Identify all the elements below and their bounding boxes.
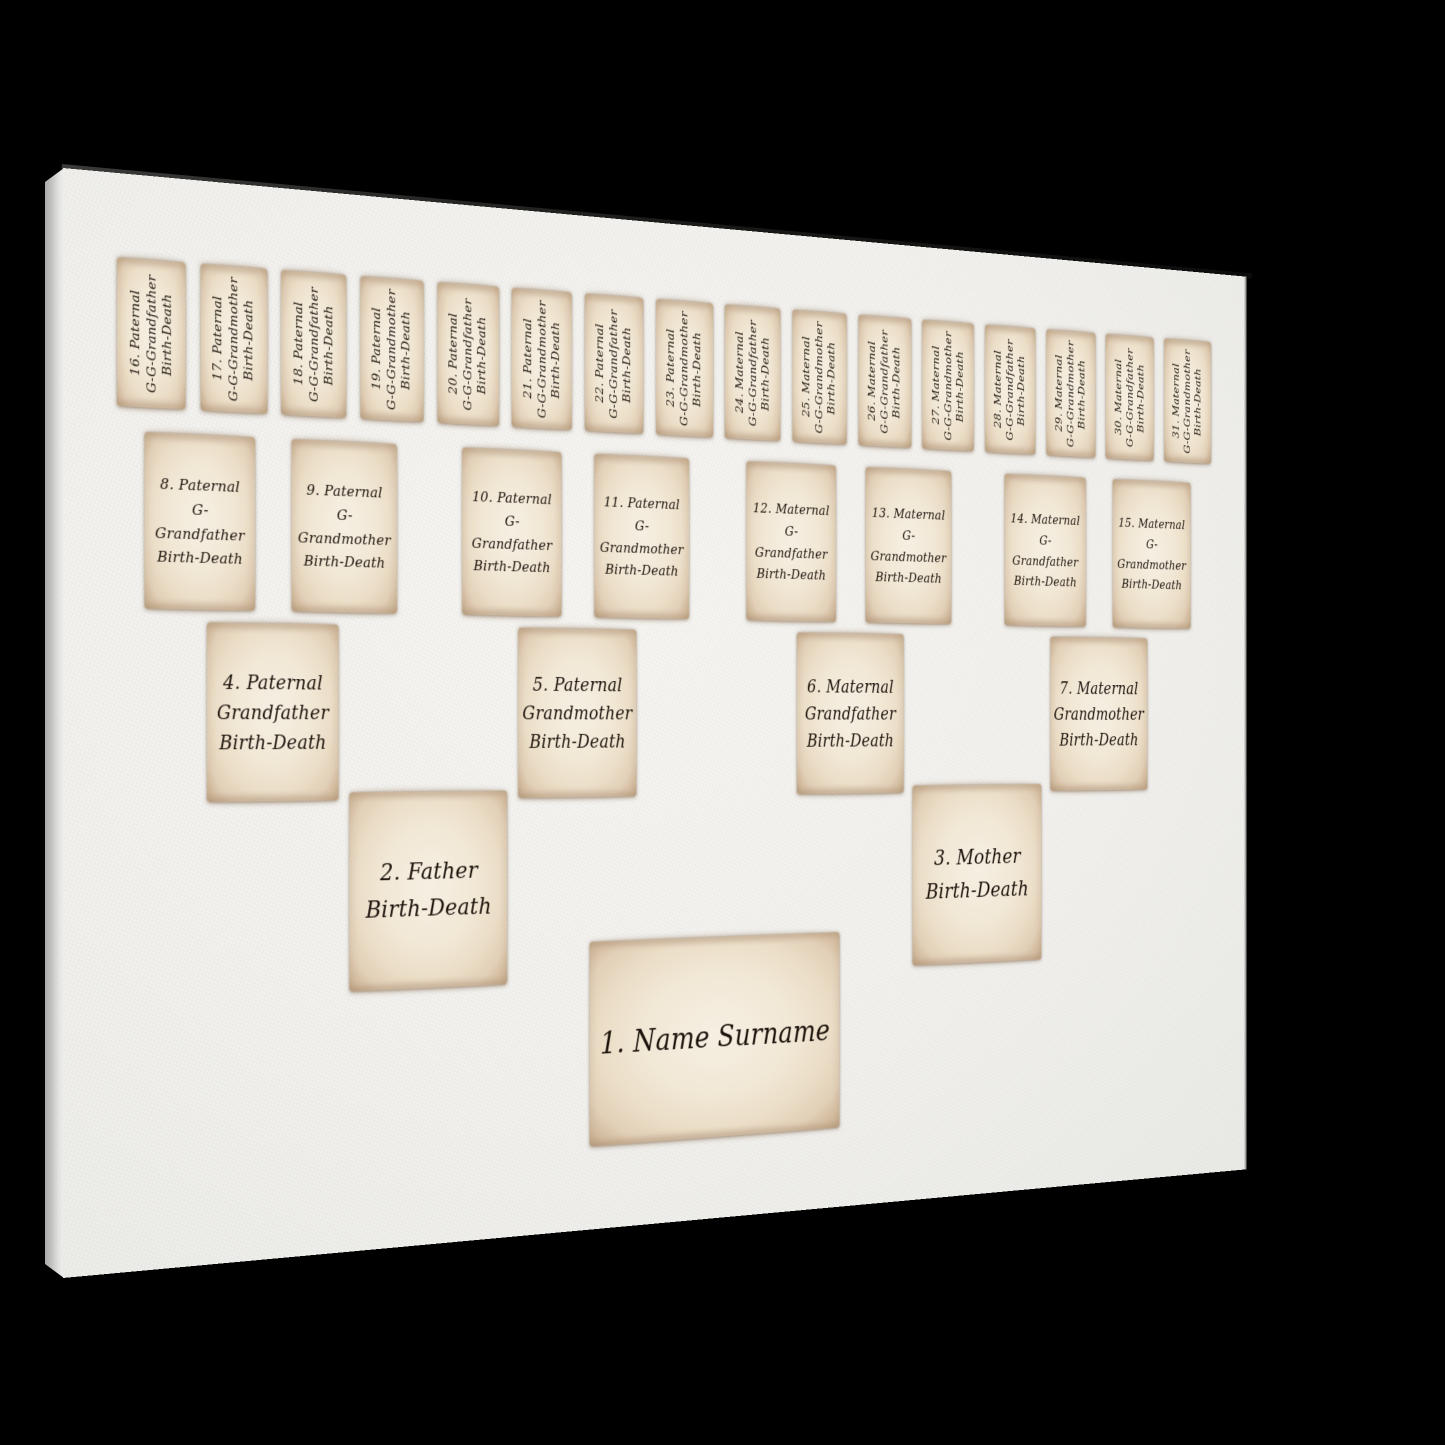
ancestor-card-text: 19. PaternalG-G-GrandmotherBirth-Death	[370, 279, 414, 420]
ancestor-card: 27. MaternalG-G-GrandmotherBirth-Death	[922, 320, 973, 451]
ancestor-card-line: Birth-Death	[800, 727, 901, 754]
ancestor-card-line: Birth-Death	[159, 266, 175, 403]
ancestor-card-line: G-G-Grandfather	[307, 278, 322, 411]
ancestor-card-line: Birth-Death	[1115, 574, 1188, 596]
ancestor-card-line: 17. Paternal	[210, 270, 226, 405]
ancestor-card-text: 6. MaternalGrandfatherBirth-Death	[797, 672, 904, 754]
ancestor-card-line: 16. Paternal	[127, 264, 143, 401]
ancestor-card: 25. MaternalG-G-GrandmotherBirth-Death	[793, 310, 847, 445]
ancestor-card-line: G-G-Grandmother	[226, 272, 242, 407]
ancestor-card-line: Birth-Death	[400, 285, 415, 416]
ancestor-card-line: Birth-Death	[869, 566, 949, 590]
ancestor-card-text: 4. PaternalGrandfatherBirth-Death	[207, 667, 338, 758]
ancestor-card-line: Birth-Death	[242, 273, 257, 408]
ancestor-card-text: 18. PaternalG-G-GrandfatherBirth-Death	[291, 273, 336, 416]
ancestor-card: 14. MaternalG-GrandfatherBirth-Death	[1005, 474, 1086, 627]
ancestor-card: 28. MaternalG-G-GrandfatherBirth-Death	[985, 325, 1035, 455]
ancestor-card-line: 10. Paternal	[466, 485, 559, 512]
ancestor-card-line: Birth-Death	[691, 307, 704, 431]
canvas-left-edge	[45, 168, 64, 1278]
canvas-print-mockup: 16. PaternalG-G-GrandfatherBirth-Death17…	[0, 0, 1445, 1445]
ancestor-card-line: Birth-Death	[954, 327, 966, 445]
ancestor-card-text: 24. MaternalG-G-GrandfatherBirth-Death	[733, 307, 772, 439]
ancestor-card-line: 18. Paternal	[291, 277, 306, 411]
ancestor-card-line: Birth-Death	[148, 545, 251, 572]
ancestor-card-line: Grandmother	[522, 699, 634, 728]
ancestor-card-line: 26. Maternal	[866, 321, 878, 441]
ancestor-card-text: 5. PaternalGrandmotherBirth-Death	[518, 670, 636, 756]
ancestor-card-text: 2. FatherBirth-Death	[349, 852, 507, 929]
ancestor-card-text: 22. PaternalG-G-GrandfatherBirth-Death	[594, 296, 635, 431]
ancestor-card: 6. MaternalGrandfatherBirth-Death	[797, 633, 904, 795]
ancestor-card-line: Birth-Death	[621, 302, 635, 428]
ancestor-card-text: 23. PaternalG-G-GrandmotherBirth-Death	[664, 302, 704, 436]
ancestor-card-text: 26. MaternalG-G-GrandfatherBirth-Death	[866, 317, 903, 446]
ancestor-card-line: Birth-Death	[749, 563, 833, 587]
ancestor-card-text: 16. PaternalG-G-GrandfatherBirth-Death	[127, 260, 175, 407]
ancestor-card-text: 27. MaternalG-G-GrandmotherBirth-Death	[930, 322, 966, 449]
ancestor-card-line: G-G-Grandfather	[1004, 331, 1016, 448]
generation-row-grandparents: 4. PaternalGrandfatherBirth-Death5. Pate…	[63, 620, 1246, 804]
ancestor-card-line: G-Grandmother	[1115, 533, 1188, 576]
ancestor-card-line: 6. Maternal	[800, 673, 901, 701]
ancestor-card-line: 3. Mother	[915, 839, 1038, 875]
ancestor-card: 30. MaternalG-G-GrandfatherBirth-Death	[1106, 334, 1154, 461]
ancestor-card-text: 14. MaternalG-GrandfatherBirth-Death	[1005, 508, 1086, 594]
ancestor-card-line: G-Grandfather	[1007, 529, 1083, 573]
ancestor-card: 5. PaternalGrandmotherBirth-Death	[518, 628, 636, 798]
ancestor-card-line: G-G-Grandmother	[1065, 336, 1076, 452]
generation-row-great-great-grandparents: 16. PaternalG-G-GrandfatherBirth-Death17…	[63, 253, 1246, 466]
ancestor-card: 10. PaternalG-GrandfatherBirth-Death	[462, 447, 561, 616]
ancestor-card-text: 9. PaternalG-GrandmotherBirth-Death	[292, 478, 397, 576]
ancestor-card-line: Birth-Death	[826, 318, 839, 439]
ancestor-card-line: G-G-Grandmother	[942, 326, 954, 445]
ancestor-card-line: G-G-Grandfather	[746, 311, 759, 434]
ancestor-card-line: Grandfather	[211, 697, 335, 727]
ancestor-card-line: Grandfather	[800, 700, 901, 727]
ancestor-card-line: 13. Maternal	[869, 502, 949, 527]
ancestor-card: 21. PaternalG-G-GrandmotherBirth-Death	[512, 288, 572, 430]
ancestor-card-line: 25. Maternal	[801, 316, 814, 438]
ancestor-card: 13. MaternalG-GrandmotherBirth-Death	[866, 467, 952, 624]
ancestor-card-line: Birth-Death	[1135, 341, 1146, 455]
ancestor-card-line: G-G-Grandfather	[607, 301, 621, 427]
ancestor-card: 4. PaternalGrandfatherBirth-Death	[207, 622, 338, 802]
ancestor-card-line: Birth-Death	[1076, 337, 1087, 452]
ancestor-card: 9. PaternalG-GrandmotherBirth-Death	[292, 439, 397, 613]
ancestor-card-line: G-G-Grandmother	[1182, 345, 1193, 458]
ancestor-card-line: 8. Paternal	[148, 472, 251, 500]
ancestor-card: 15. MaternalG-GrandmotherBirth-Death	[1113, 479, 1191, 628]
ancestor-card-text: 17. PaternalG-G-GrandmotherBirth-Death	[210, 266, 257, 411]
ancestor-card-line: Birth-Death	[759, 312, 772, 435]
ancestor-card-line: G-Grandfather	[749, 519, 833, 565]
ancestor-card-line: 31. Maternal	[1171, 344, 1182, 457]
ancestor-card-line: 7. Maternal	[1053, 675, 1145, 701]
ancestor-card-line: 30. Maternal	[1113, 340, 1124, 455]
ancestor-card-text: 12. MaternalG-GrandfatherBirth-Death	[746, 497, 835, 587]
ancestor-card-line: 19. Paternal	[370, 283, 385, 415]
family-tree-canvas: 16. PaternalG-G-GrandfatherBirth-Death17…	[63, 168, 1246, 1278]
ancestor-card-line: Birth-Death	[522, 727, 634, 756]
ancestor-card-line: 27. Maternal	[930, 326, 942, 445]
ancestor-card-line: Birth-Death	[322, 279, 337, 412]
ancestor-card: 1. Name Surname	[590, 932, 840, 1146]
ancestor-card-line: G-Grandfather	[466, 508, 559, 557]
ancestor-card: 11. PaternalG-GrandmotherBirth-Death	[594, 454, 689, 619]
ancestor-card-text: 7. MaternalGrandmotherBirth-Death	[1050, 675, 1147, 753]
ancestor-card-line: G-G-Grandmother	[385, 284, 400, 415]
ancestor-card: 29. MaternalG-G-GrandmotherBirth-Death	[1046, 329, 1095, 457]
ancestor-card-line: Birth-Death	[353, 888, 504, 929]
ancestor-card-line: 24. Maternal	[733, 310, 746, 433]
ancestor-card-line: Birth-Death	[466, 554, 559, 580]
ancestor-card-line: 5. Paternal	[522, 670, 634, 699]
ancestor-card-line: 11. Paternal	[598, 490, 686, 516]
ancestor-card-line: Birth-Death	[549, 296, 563, 424]
ancestor-card: 16. PaternalG-G-GrandfatherBirth-Death	[117, 257, 185, 409]
ancestor-card-line: G-G-Grandfather	[1124, 340, 1135, 454]
ancestor-card-text: 29. MaternalG-G-GrandmotherBirth-Death	[1054, 332, 1088, 456]
ancestor-card-line: 28. Maternal	[993, 330, 1005, 447]
ancestor-card-text: 13. MaternalG-GrandmotherBirth-Death	[866, 502, 952, 590]
ancestor-card-line: G-G-Grandmother	[813, 317, 826, 439]
ancestor-card-line: G-G-Grandfather	[461, 290, 475, 420]
ancestor-card-line: 9. Paternal	[295, 478, 393, 506]
ancestor-card: 26. MaternalG-G-GrandfatherBirth-Death	[858, 315, 911, 448]
ancestor-card: 23. PaternalG-G-GrandmotherBirth-Death	[656, 299, 713, 437]
ancestor-card-line: Birth-Death	[295, 549, 393, 575]
ancestor-card-line: 2. Father	[353, 852, 504, 892]
ancestor-card-line: Birth-Death	[598, 558, 686, 583]
ancestor-card-line: 14. Maternal	[1007, 508, 1083, 532]
ancestor-card-line: G-Grandmother	[869, 523, 949, 568]
ancestor-card-line: G-Grandmother	[295, 502, 393, 553]
ancestor-card-line: 4. Paternal	[211, 667, 335, 698]
ancestor-card-line: Birth-Death	[915, 872, 1038, 909]
generation-row-self: 1. Name Surname	[63, 916, 1246, 1187]
ancestor-card-line: Birth-Death	[211, 727, 335, 757]
ancestor-card-text: 25. MaternalG-G-GrandmotherBirth-Death	[801, 312, 839, 442]
canvas-right-edge	[1244, 276, 1246, 1169]
ancestor-card-text: 20. PaternalG-G-GrandfatherBirth-Death	[447, 285, 490, 424]
ancestor-card-line: G-G-Grandmother	[535, 295, 549, 423]
ancestor-card: 12. MaternalG-GrandfatherBirth-Death	[746, 461, 835, 621]
ancestor-card: 31. MaternalG-G-GrandmotherBirth-Death	[1164, 339, 1211, 464]
ancestor-card-text: 28. MaternalG-G-GrandfatherBirth-Death	[993, 327, 1028, 452]
ancestor-card: 19. PaternalG-G-GrandmotherBirth-Death	[360, 276, 423, 422]
ancestor-card-text: 3. MotherBirth-Death	[913, 839, 1042, 909]
ancestor-card-line: 1. Name Surname	[593, 1011, 837, 1063]
ancestor-card-line: 21. Paternal	[521, 294, 535, 422]
ancestor-card-line: G-G-Grandfather	[879, 322, 891, 442]
ancestor-card-text: 31. MaternalG-G-GrandmotherBirth-Death	[1171, 341, 1204, 462]
ancestor-card-text: 1. Name Surname	[590, 1011, 840, 1064]
ancestor-card-line: 12. Maternal	[749, 497, 833, 522]
ancestor-card-line: Birth-Death	[1193, 346, 1204, 459]
ancestor-card: 17. PaternalG-G-GrandmotherBirth-Death	[200, 264, 267, 414]
ancestor-card-text: 10. PaternalG-GrandfatherBirth-Death	[462, 485, 561, 580]
ancestor-card-line: 29. Maternal	[1054, 335, 1066, 451]
ancestor-card-line: Birth-Death	[475, 291, 489, 420]
ancestor-card: 18. PaternalG-G-GrandfatherBirth-Death	[282, 270, 347, 418]
generation-row-great-grandparents: 8. PaternalG-GrandfatherBirth-Death9. Pa…	[63, 428, 1246, 630]
ancestor-card-line: Birth-Death	[1053, 727, 1145, 753]
ancestor-card-text: 21. PaternalG-G-GrandmotherBirth-Death	[521, 290, 563, 427]
ancestor-card: 22. PaternalG-G-GrandfatherBirth-Death	[585, 294, 643, 434]
ancestor-card-text: 8. PaternalG-GrandfatherBirth-Death	[145, 471, 255, 572]
ancestor-card-line: G-Grandfather	[148, 496, 251, 548]
ancestor-card-line: G-Grandmother	[598, 513, 686, 561]
ancestor-card-line: 22. Paternal	[594, 300, 608, 427]
ancestor-card-line: G-G-Grandmother	[678, 306, 691, 431]
ancestor-card-text: 11. PaternalG-GrandmotherBirth-Death	[594, 490, 689, 583]
ancestor-card-line: 23. Paternal	[664, 305, 677, 430]
ancestor-card-line: G-G-Grandfather	[143, 265, 159, 402]
ancestor-card-line: 20. Paternal	[447, 288, 461, 418]
ancestor-card-line: Grandmother	[1053, 701, 1145, 727]
ancestor-card: 7. MaternalGrandmotherBirth-Death	[1050, 637, 1147, 791]
ancestor-card-line: Birth-Death	[1007, 571, 1083, 594]
ancestor-card-line: Birth-Death	[891, 323, 903, 443]
ancestor-card: 24. MaternalG-G-GrandfatherBirth-Death	[725, 304, 780, 440]
ancestor-card: 8. PaternalG-GrandfatherBirth-Death	[145, 432, 255, 611]
ancestor-card: 20. PaternalG-G-GrandfatherBirth-Death	[437, 282, 498, 426]
ancestor-card-line: Birth-Death	[1016, 332, 1028, 449]
ancestor-card-text: 15. MaternalG-GrandmotherBirth-Death	[1113, 512, 1191, 596]
ancestor-card-text: 30. MaternalG-G-GrandfatherBirth-Death	[1113, 336, 1147, 458]
ancestor-card-line: 15. Maternal	[1115, 512, 1188, 535]
